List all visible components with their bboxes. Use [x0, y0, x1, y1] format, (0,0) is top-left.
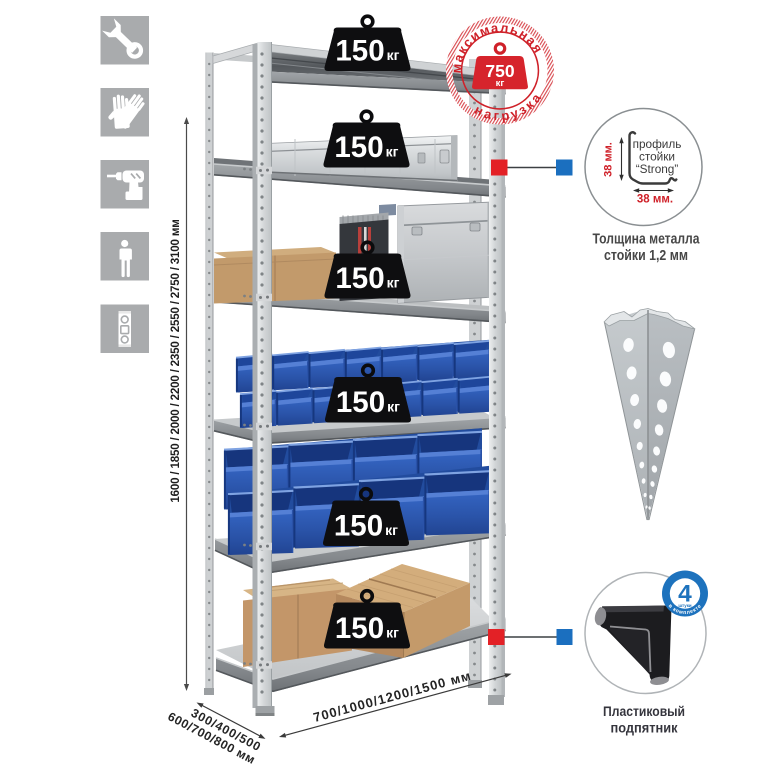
svg-text:150: 150	[334, 131, 383, 164]
svg-text:Толщина металла: Толщина металла	[593, 232, 701, 248]
svg-text:кг: кг	[496, 78, 505, 89]
svg-text:кг: кг	[386, 144, 399, 160]
svg-text:штуки: штуки	[678, 603, 692, 608]
svg-text:150: 150	[335, 35, 384, 68]
svg-text:кг: кг	[387, 275, 400, 291]
svg-text:подпятник: подпятник	[611, 721, 679, 737]
svg-text:150: 150	[334, 510, 383, 543]
svg-text:“Strong”: “Strong”	[636, 162, 679, 176]
svg-text:150: 150	[335, 612, 384, 645]
svg-text:Пластиковый: Пластиковый	[603, 704, 685, 720]
svg-text:38 мм.: 38 мм.	[637, 194, 673, 206]
svg-text:стойки 1,2 мм: стойки 1,2 мм	[604, 248, 688, 264]
svg-text:кг: кг	[387, 399, 400, 415]
svg-text:38 мм.: 38 мм.	[603, 142, 615, 177]
svg-text:1600 / 1850 / 2000 / 2200 / 23: 1600 / 1850 / 2000 / 2200 / 2350 / 2550 …	[169, 219, 182, 502]
svg-text:150: 150	[336, 386, 385, 419]
svg-text:кг: кг	[386, 625, 399, 641]
svg-text:кг: кг	[387, 47, 400, 63]
svg-text:150: 150	[335, 262, 384, 295]
svg-text:кг: кг	[385, 522, 398, 538]
